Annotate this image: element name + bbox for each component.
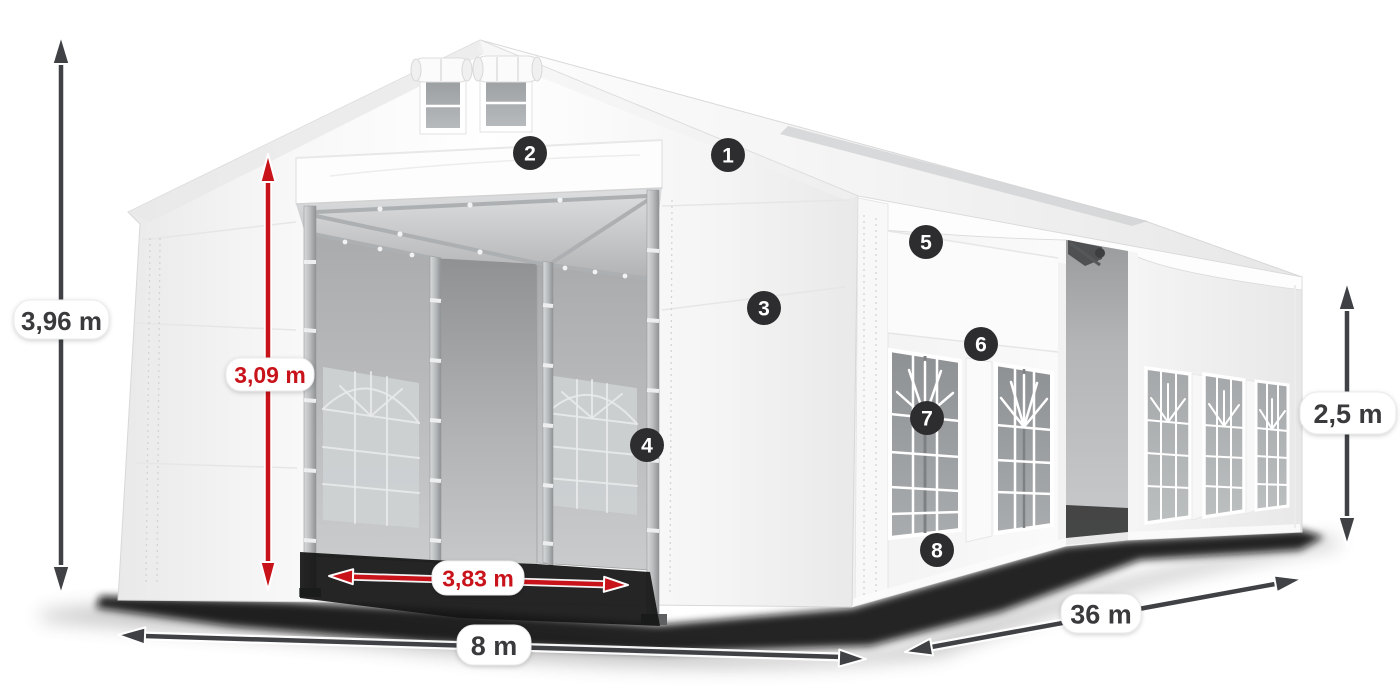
entrance-width-value: 3,83 m: [442, 566, 514, 592]
entrance-height-value: 3,09 m: [234, 362, 306, 388]
total-height-label: 3,96 m: [14, 300, 109, 339]
svg-text:6: 6: [975, 334, 987, 357]
entrance-interior: [296, 188, 667, 626]
interior-partition-right: [537, 263, 650, 570]
entrance-height-label: 3,09 m: [226, 358, 314, 391]
side-window-5: [1256, 381, 1288, 510]
side-height-value: 2,5 m: [1313, 399, 1382, 429]
partition-window-right: [547, 375, 637, 515]
interior-passage: [432, 258, 537, 565]
svg-text:1: 1: [722, 145, 734, 168]
roof-vent-right: [473, 56, 542, 132]
svg-text:3: 3: [758, 298, 770, 321]
tent-width-value: 8 m: [471, 631, 518, 661]
tent-length-value: 36 m: [1070, 600, 1132, 630]
svg-text:7: 7: [921, 408, 933, 431]
feature-badge-4: 4: [630, 428, 664, 462]
feature-badge-1: 1: [711, 138, 745, 172]
roof-vent-left: [411, 58, 472, 134]
svg-text:8: 8: [931, 540, 943, 563]
side-corner-band: [855, 198, 888, 605]
tent-dimension-diagram: 3,96 m 3,09 m 3,83 m 8 m 36 m 2,5 m 1 2 …: [0, 0, 1400, 700]
side-window-strap: [966, 358, 992, 542]
feature-badge-7: 7: [910, 401, 944, 435]
side-height-label: 2,5 m: [1300, 392, 1396, 434]
vent-roll-right: [473, 56, 542, 82]
vent-roll-left: [411, 58, 472, 82]
partition-window-left: [323, 367, 419, 528]
feature-badge-6: 6: [964, 327, 998, 361]
total-height-value: 3,96 m: [21, 306, 102, 336]
svg-text:4: 4: [641, 435, 653, 458]
svg-text:5: 5: [920, 232, 932, 255]
side-window-1: [890, 350, 960, 538]
interior-partition-left: [313, 234, 432, 562]
svg-text:2: 2: [524, 143, 536, 166]
side-window-4: [1204, 374, 1244, 517]
side-window-3: [1146, 368, 1190, 523]
feature-badge-8: 8: [920, 533, 954, 567]
tent-width-label: 8 m: [457, 625, 531, 665]
entrance-width-label: 3,83 m: [432, 561, 524, 595]
side-window-strap-2: [1192, 374, 1204, 520]
side-door-opening: [1058, 240, 1138, 548]
feature-badge-5: 5: [909, 225, 943, 259]
post-partition-right: [543, 261, 553, 566]
feature-badge-2: 2: [513, 136, 547, 170]
post-partition-left: [430, 256, 441, 566]
feature-badge-3: 3: [747, 291, 781, 325]
tent-length-label: 36 m: [1061, 594, 1141, 633]
side-window-2: [996, 364, 1052, 533]
